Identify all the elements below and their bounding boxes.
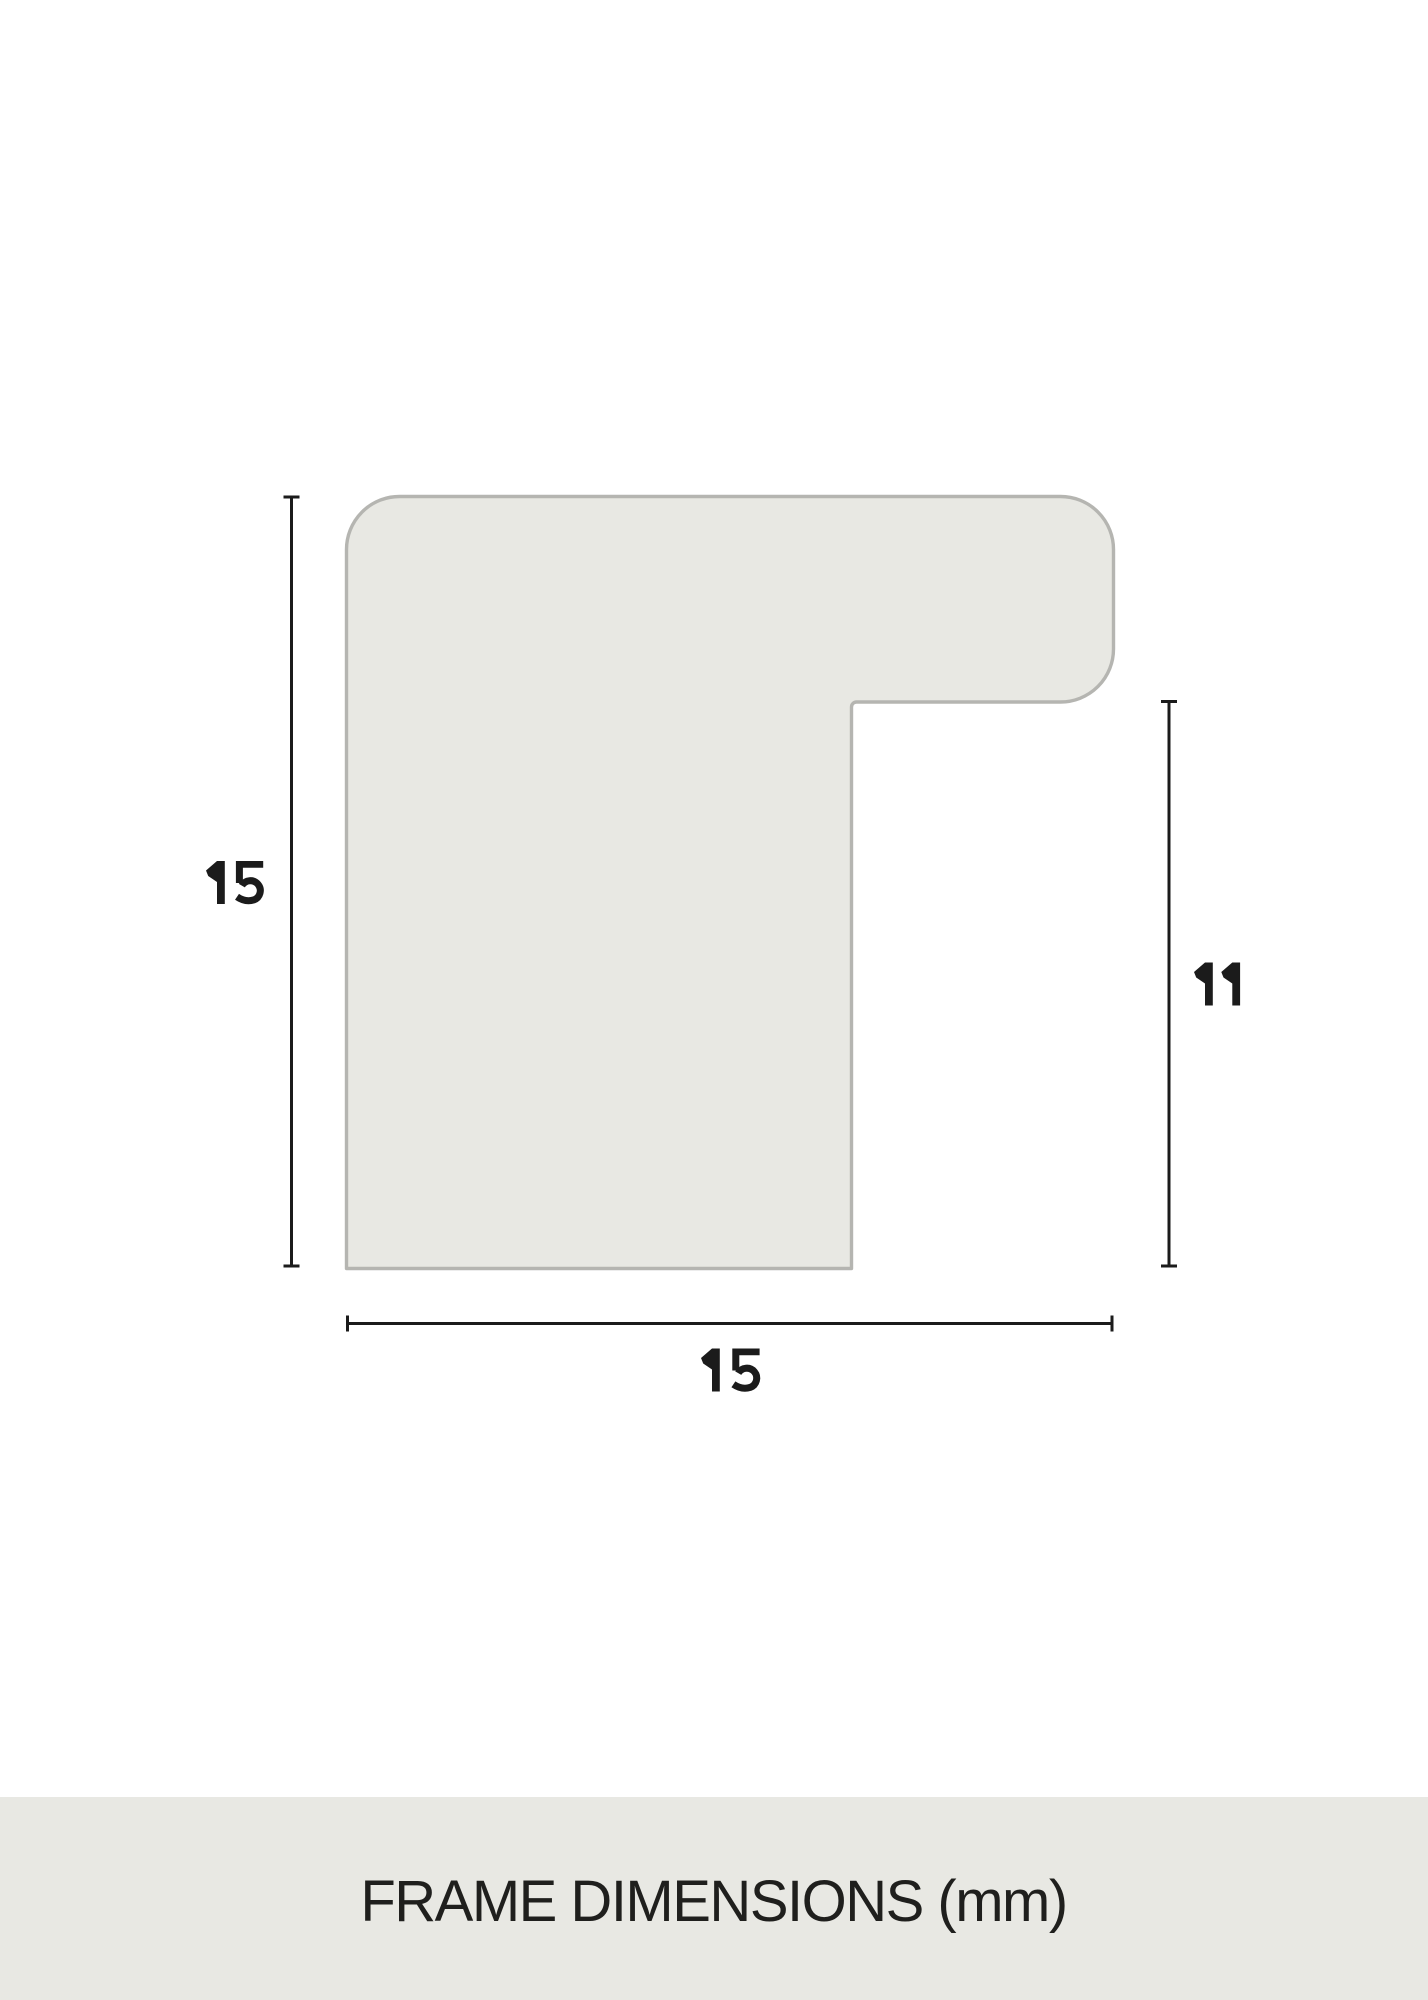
svg-text:FRAME DIMENSIONS (mm): FRAME DIMENSIONS (mm) — [360, 1869, 1066, 1934]
